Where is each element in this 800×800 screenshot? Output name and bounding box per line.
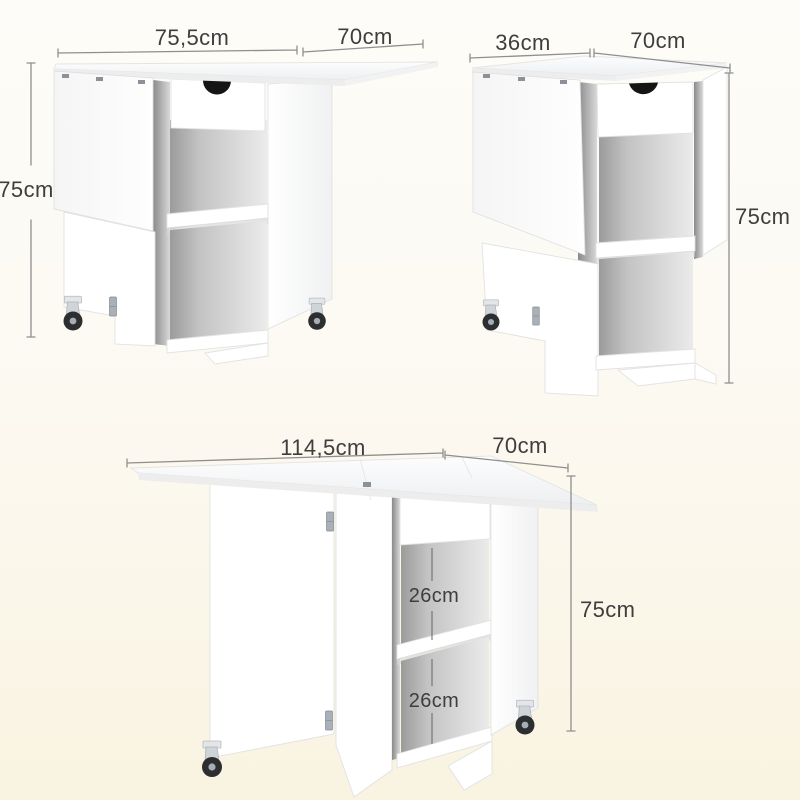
upper-cubby-interior: [599, 133, 693, 246]
center-gate-panel: [336, 482, 392, 797]
side-panel: [268, 80, 332, 329]
depth-label-figure-a: 70cm: [337, 24, 392, 49]
hinge: [533, 307, 540, 325]
width-label-figure-c: 114,5cm: [280, 435, 366, 460]
upper-compartment-label: 26cm: [409, 585, 460, 607]
leaf-hinge-tab: [483, 74, 490, 78]
height-label-figure-c: 75cm: [580, 597, 635, 622]
caster-wheel: [202, 741, 222, 777]
hinge: [326, 711, 333, 730]
product-dimension-diagram: 75,5cm 70cm 75cm: [0, 0, 800, 800]
depth-dimension: 70cm: [303, 24, 423, 56]
depth-label-figure-b: 70cm: [630, 28, 685, 53]
leaf-hinge-tab: [518, 77, 525, 81]
leaf-hinge-tab: [560, 80, 567, 84]
width-label-figure-a: 75,5cm: [155, 25, 230, 50]
panel-gap-shadow: [153, 80, 170, 346]
base-foot: [695, 363, 716, 384]
caster-wheel: [483, 300, 500, 331]
caster-wheel: [516, 700, 535, 734]
panel-gap-shadow: [392, 485, 400, 760]
hinge: [327, 512, 334, 531]
caster-wheel: [308, 298, 326, 330]
dimension-line: [567, 476, 575, 731]
lower-compartment-label: 26cm: [409, 690, 460, 712]
figure-one-leaf-down: 75,5cm 70cm 75cm: [0, 24, 438, 364]
height-label-figure-a: 75cm: [0, 177, 54, 202]
caster-wheel: [64, 296, 83, 330]
drop-leaf-left: [473, 72, 585, 255]
left-support-panel: [210, 478, 334, 758]
lower-cubby-interior: [599, 252, 693, 359]
height-dimension: 75cm: [567, 476, 635, 731]
height-dimension: 75cm: [0, 63, 54, 337]
folded-gate-panel: [482, 243, 598, 396]
height-label-figure-b: 75cm: [735, 204, 790, 229]
width-label-figure-b: 36cm: [495, 30, 550, 55]
right-side-panel: [491, 478, 538, 735]
figure-fully-open: 114,5cm 70cm 75cm 26cm 26cm: [127, 433, 635, 797]
drop-leaf-right: [703, 67, 727, 255]
leaf-hinge-tab: [62, 74, 69, 78]
lower-cubby-interior: [170, 221, 267, 344]
leaf-hinge-tab: [96, 77, 103, 81]
leaf-hinge-tab: [138, 80, 145, 84]
width-dimension: 75,5cm: [58, 25, 297, 57]
leaf-hinge-tab: [363, 482, 371, 487]
height-dimension: 75cm: [725, 73, 790, 383]
hinge: [110, 297, 117, 316]
diagram-canvas: 75,5cm 70cm 75cm: [0, 0, 800, 800]
depth-label-figure-c: 70cm: [492, 433, 547, 458]
panel-gap-shadow: [694, 81, 703, 259]
drop-leaf: [54, 71, 153, 231]
figure-both-leaves-down: 36cm 70cm 75cm: [470, 28, 790, 396]
